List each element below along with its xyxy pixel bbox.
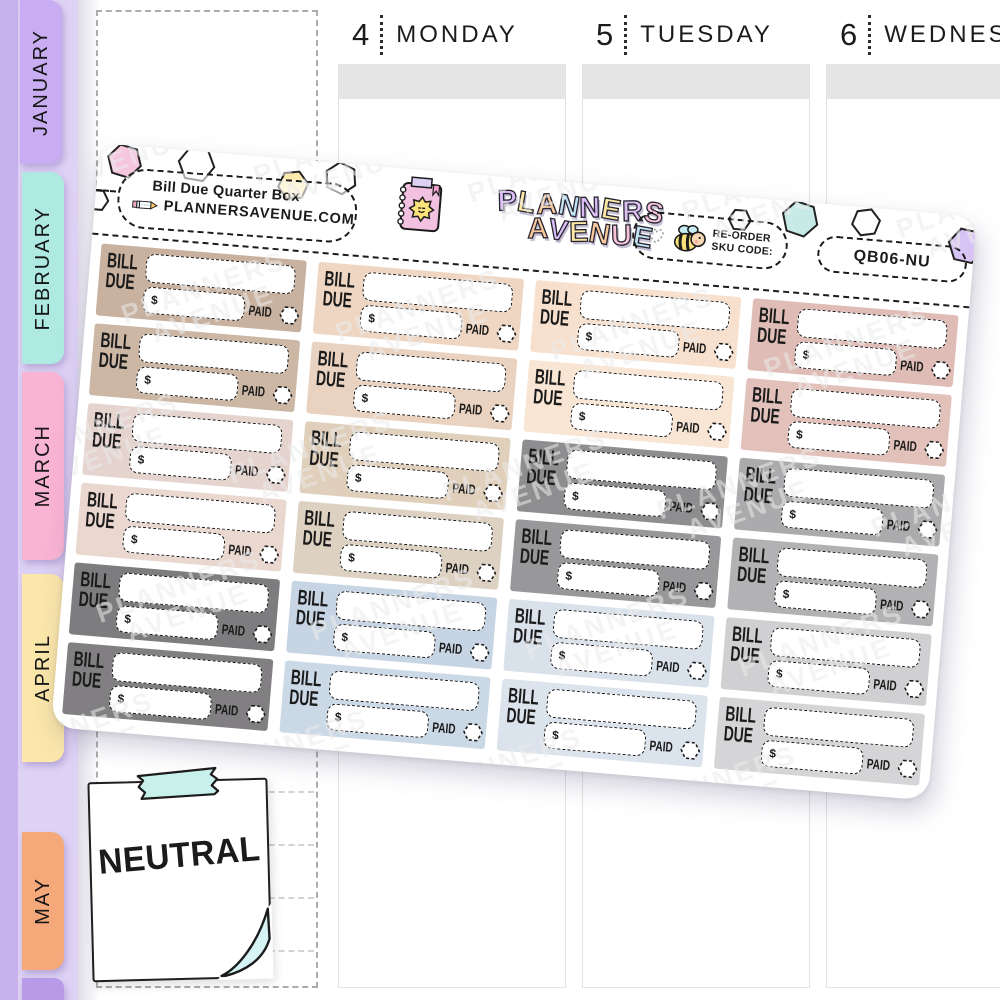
paid-label: PAID — [886, 516, 911, 534]
bill-due-label: BILL DUE — [756, 306, 790, 347]
paid-checkbox-hexagon — [910, 600, 931, 620]
bill-due-label: BILL DUE — [723, 704, 757, 745]
currency-symbol: $ — [341, 630, 349, 645]
next-month-tab-partial — [22, 978, 64, 1000]
bill-amount-field: $ — [142, 286, 246, 321]
month-tab-february: FEBRUARY — [22, 172, 64, 364]
bill-due-sticker: BILL DUE $ PAID — [82, 403, 293, 492]
paid-checkbox-hexagon — [489, 404, 510, 424]
day-name: MONDAY — [396, 21, 518, 49]
bill-amount-field: $ — [339, 544, 443, 579]
paid-label: PAID — [873, 676, 898, 694]
paid-label: PAID — [866, 755, 891, 773]
paid-checkbox-hexagon — [252, 625, 273, 645]
currency-symbol: $ — [117, 691, 125, 706]
month-tab-label: MAY — [32, 877, 55, 925]
bill-amount-field: $ — [563, 482, 667, 517]
paid-label: PAID — [214, 701, 239, 719]
paid-checkbox-hexagon — [924, 440, 945, 460]
currency-symbol: $ — [782, 587, 790, 602]
bill-amount-field: $ — [115, 605, 219, 640]
bill-amount-field: $ — [794, 341, 898, 376]
bill-amount-field: $ — [556, 562, 660, 597]
month-tab-label: MARCH — [32, 424, 55, 507]
paid-label: PAID — [248, 302, 273, 320]
bill-amount-field: $ — [332, 623, 436, 658]
currency-symbol: $ — [348, 550, 356, 565]
bee-icon — [671, 223, 707, 254]
paid-checkbox-hexagon — [265, 465, 286, 485]
bill-due-label: BILL DUE — [506, 686, 540, 727]
bill-due-label: BILL DUE — [539, 288, 573, 329]
bill-amount-field: $ — [326, 703, 430, 738]
bill-amount-field: $ — [787, 421, 891, 456]
bill-amount-field: $ — [129, 446, 233, 481]
paid-checkbox-hexagon — [496, 324, 517, 344]
bill-due-sticker: BILL DUE $ PAID — [299, 421, 510, 510]
paid-checkbox-hexagon — [903, 679, 924, 699]
bill-due-label: BILL DUE — [91, 410, 125, 451]
paid-label: PAID — [893, 436, 918, 454]
paid-checkbox-hexagon — [680, 741, 701, 761]
bill-due-sticker: BILL DUE $ PAID — [517, 439, 728, 528]
currency-symbol: $ — [150, 293, 158, 308]
bill-due-label: BILL DUE — [295, 588, 329, 629]
bill-amount-field: $ — [780, 500, 884, 535]
bill-due-sticker: BILL DUE $ PAID — [62, 642, 273, 731]
bill-due-label: BILL DUE — [736, 545, 770, 586]
month-tab-march: MARCH — [22, 372, 64, 560]
colorway-name: NEUTRAL — [94, 829, 264, 883]
bill-due-label: BILL DUE — [526, 447, 560, 488]
day-header-monday: 4 MONDAY — [352, 12, 518, 58]
paid-checkbox-hexagon — [476, 563, 497, 583]
day-name: TUESDAY — [640, 21, 773, 49]
day-number: 5 — [596, 17, 613, 53]
bill-amount-field: $ — [108, 685, 212, 720]
currency-symbol: $ — [572, 489, 580, 504]
currency-symbol: $ — [789, 507, 797, 522]
paid-label: PAID — [669, 498, 694, 516]
all-day-bar — [339, 65, 565, 99]
bill-amount-field: $ — [352, 384, 456, 419]
paid-label: PAID — [221, 621, 246, 639]
currency-symbol: $ — [802, 348, 810, 363]
currency-symbol: $ — [558, 648, 566, 663]
currency-symbol: $ — [551, 728, 559, 743]
dotted-divider — [380, 15, 383, 55]
day-number: 4 — [352, 17, 369, 53]
month-tab-label: FEBRUARY — [32, 206, 55, 331]
bill-due-label: BILL DUE — [532, 367, 566, 408]
bill-due-sticker: BILL DUE $ PAID — [727, 537, 938, 626]
all-day-bar — [583, 65, 809, 99]
currency-symbol: $ — [137, 452, 145, 467]
bill-due-sticker: BILL DUE $ PAID — [721, 617, 932, 706]
paid-label: PAID — [676, 418, 701, 436]
all-day-bar — [827, 65, 1000, 99]
month-tab-january: JANUARY — [20, 0, 62, 164]
bill-due-label: BILL DUE — [71, 650, 105, 691]
month-tab-label: APRIL — [32, 634, 55, 702]
colorway-note: NEUTRAL — [87, 778, 272, 983]
paid-label: PAID — [432, 719, 457, 737]
bill-amount-field: $ — [122, 525, 226, 560]
paid-checkbox-hexagon — [897, 759, 918, 779]
paid-checkbox-hexagon — [930, 360, 951, 380]
currency-symbol: $ — [795, 427, 803, 442]
bill-amount-field: $ — [760, 740, 864, 775]
paid-label: PAID — [465, 320, 490, 338]
bill-amount-field: $ — [774, 580, 878, 615]
bill-due-sticker: BILL DUE $ PAID — [497, 679, 708, 768]
bill-due-label: BILL DUE — [322, 269, 356, 310]
currency-symbol: $ — [130, 532, 138, 547]
bill-due-sticker: BILL DUE $ PAID — [503, 599, 714, 688]
paid-label: PAID — [458, 400, 483, 418]
bill-due-label: BILL DUE — [105, 251, 139, 292]
bill-due-sticker: BILL DUE $ PAID — [510, 519, 721, 608]
bill-due-sticker: BILL DUE $ PAID — [734, 458, 945, 547]
paid-checkbox-hexagon — [686, 661, 707, 681]
paid-checkbox-hexagon — [279, 306, 300, 326]
bill-due-label: BILL DUE — [730, 625, 764, 666]
paid-label: PAID — [445, 559, 470, 577]
bill-due-sticker: BILL DUE $ PAID — [741, 378, 952, 467]
paid-label: PAID — [452, 480, 477, 498]
bill-due-label: BILL DUE — [302, 508, 336, 549]
heart-icon — [645, 226, 667, 246]
sticker-grid: BILL DUE $ PAID BILL DUE $ PAID BILL DUE — [62, 243, 958, 785]
currency-symbol: $ — [368, 311, 376, 326]
bill-due-label: BILL DUE — [98, 331, 132, 372]
bill-amount-field: $ — [359, 304, 463, 339]
day-header-tuesday: 5 TUESDAY — [596, 12, 773, 58]
day-number: 6 — [840, 17, 857, 53]
bill-due-sticker: BILL DUE $ PAID — [293, 501, 504, 590]
paid-checkbox-hexagon — [693, 581, 714, 601]
notebook-icon — [389, 174, 446, 238]
bill-due-sticker: BILL DUE $ PAID — [714, 697, 925, 786]
currency-symbol: $ — [354, 471, 362, 486]
bill-due-label: BILL DUE — [78, 570, 112, 611]
bill-amount-field: $ — [767, 660, 871, 695]
currency-symbol: $ — [565, 568, 573, 583]
folded-corner — [216, 903, 274, 980]
bill-due-label: BILL DUE — [519, 527, 553, 568]
planner-spine — [0, 0, 18, 1000]
paid-checkbox-hexagon — [245, 704, 266, 724]
bill-due-label: BILL DUE — [512, 606, 546, 647]
paid-label: PAID — [241, 382, 266, 400]
bill-due-label: BILL DUE — [750, 385, 784, 426]
paid-checkbox-hexagon — [917, 520, 938, 540]
dotted-divider — [868, 15, 871, 55]
paid-checkbox-hexagon — [700, 502, 721, 522]
bill-amount-field: $ — [570, 402, 674, 437]
paid-label: PAID — [438, 639, 463, 657]
paid-label: PAID — [879, 596, 904, 614]
day-name: WEDNESDAY — [884, 21, 1000, 49]
paid-label: PAID — [228, 541, 253, 559]
currency-symbol: $ — [334, 710, 342, 725]
washi-tape — [130, 764, 224, 803]
sku-value: QB06-NU — [853, 247, 931, 270]
bill-amount-field: $ — [576, 323, 680, 358]
bill-amount-field: $ — [346, 464, 450, 499]
month-tab-label: JANUARY — [30, 29, 53, 136]
paid-checkbox-hexagon — [706, 422, 727, 442]
paid-checkbox-hexagon — [272, 385, 293, 405]
currency-symbol: $ — [775, 666, 783, 681]
paid-checkbox-hexagon — [258, 545, 279, 565]
paid-checkbox-hexagon — [713, 342, 734, 362]
bill-due-sticker: BILL DUE $ PAID — [286, 581, 497, 670]
paid-label: PAID — [234, 461, 259, 479]
dotted-divider — [624, 15, 627, 55]
bill-amount-field: $ — [550, 642, 654, 677]
sticker-sheet: Bill Due Quarter Box PLANNERSAVENUE.COM — [51, 143, 977, 801]
product-image: JANUARY FEBRUARY MARCH APRIL MAY 4 MONDA… — [0, 0, 1000, 1000]
bill-amount-field: $ — [135, 366, 239, 401]
bill-due-sticker: BILL DUE $ PAID — [523, 360, 734, 449]
month-tab-may: MAY — [22, 832, 64, 970]
day-header-wednesday: 6 WEDNESDAY — [840, 12, 1000, 58]
currency-symbol: $ — [578, 409, 586, 424]
pencil-icon — [132, 197, 159, 213]
bill-due-sticker: BILL DUE $ PAID — [89, 323, 300, 412]
currency-symbol: $ — [144, 373, 152, 388]
currency-symbol: $ — [124, 612, 132, 627]
paid-label: PAID — [662, 578, 687, 596]
bill-due-label: BILL DUE — [315, 349, 349, 390]
bill-due-sticker: BILL DUE $ PAID — [279, 660, 490, 749]
paid-label: PAID — [900, 357, 925, 375]
paid-checkbox-hexagon — [469, 643, 490, 663]
bill-due-sticker: BILL DUE $ PAID — [75, 483, 286, 572]
currency-symbol: $ — [769, 746, 777, 761]
bill-amount-field: $ — [543, 721, 647, 756]
bill-due-sticker: BILL DUE $ PAID — [306, 341, 517, 430]
bill-due-label: BILL DUE — [309, 429, 343, 470]
currency-symbol: $ — [585, 329, 593, 344]
bill-due-label: BILL DUE — [288, 668, 322, 709]
currency-symbol: $ — [361, 391, 369, 406]
bill-due-label: BILL DUE — [85, 490, 119, 531]
paid-checkbox-hexagon — [482, 483, 503, 503]
paid-label: PAID — [682, 339, 707, 357]
paid-label: PAID — [649, 737, 674, 755]
paid-label: PAID — [656, 657, 681, 675]
paid-checkbox-hexagon — [462, 722, 483, 742]
bill-due-label: BILL DUE — [743, 465, 777, 506]
bill-due-sticker: BILL DUE $ PAID — [69, 562, 280, 651]
